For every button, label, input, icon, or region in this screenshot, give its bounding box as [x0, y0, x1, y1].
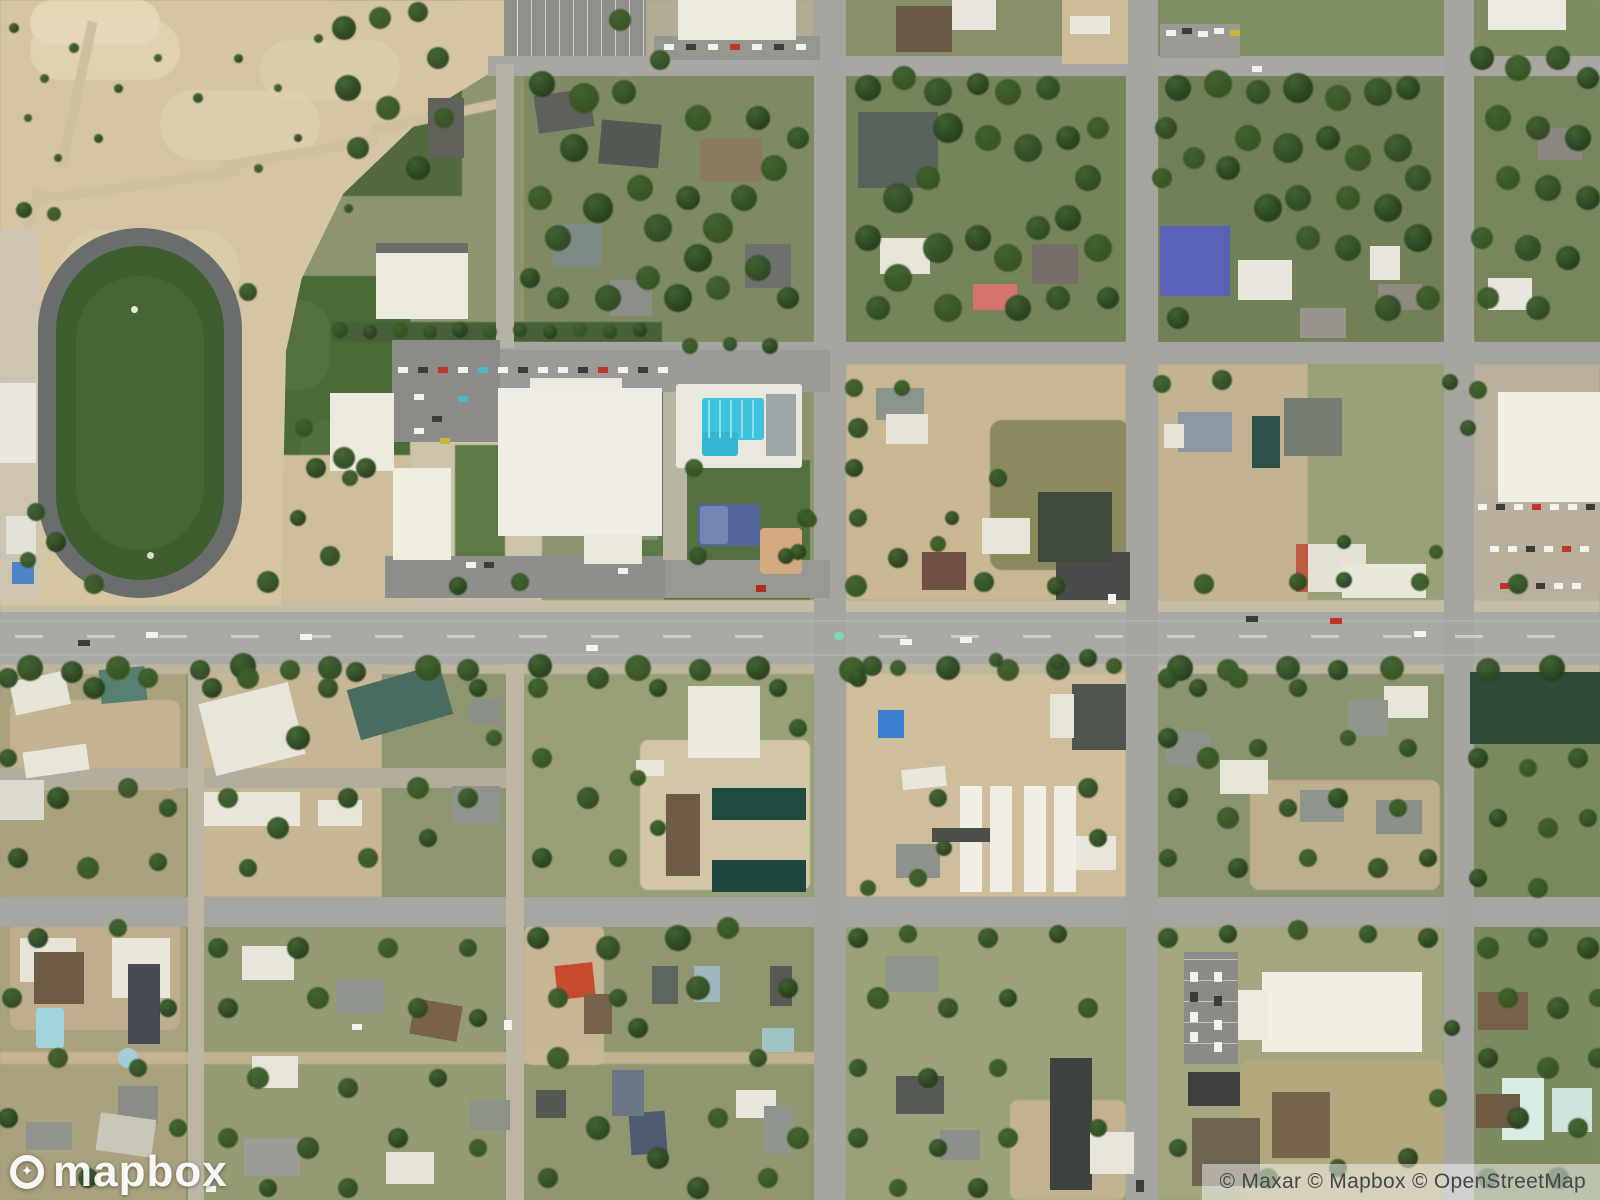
- tree: [1217, 807, 1239, 829]
- tree: [1469, 869, 1487, 887]
- building: [1370, 246, 1400, 280]
- tree: [114, 84, 123, 93]
- tree: [27, 503, 45, 521]
- tree: [1505, 55, 1531, 81]
- car: [1532, 504, 1541, 510]
- tree: [974, 572, 994, 592]
- tree: [995, 79, 1021, 105]
- tree: [237, 667, 259, 689]
- tree: [239, 283, 257, 301]
- tree: [609, 989, 627, 1007]
- tree: [665, 925, 691, 951]
- tree: [612, 80, 636, 104]
- tree: [934, 294, 962, 322]
- desert-area: [260, 40, 400, 100]
- pool-water: [700, 506, 728, 544]
- tree: [1442, 374, 1458, 390]
- tree: [1026, 216, 1050, 240]
- tree: [218, 998, 238, 1018]
- tree: [883, 183, 913, 213]
- tree: [603, 325, 617, 339]
- tree: [1336, 572, 1352, 588]
- tree: [1079, 649, 1097, 667]
- tree: [918, 1068, 938, 1088]
- tree: [1036, 76, 1060, 100]
- tree: [333, 447, 355, 469]
- tree: [344, 204, 353, 213]
- tree: [1228, 668, 1248, 688]
- car: [658, 367, 668, 373]
- tree: [989, 653, 1003, 667]
- tree: [890, 660, 906, 676]
- tree: [332, 322, 348, 338]
- road: [496, 64, 514, 348]
- map-canvas[interactable]: ✦ mapbox © Maxar © Mapbox © OpenStreetMa…: [0, 0, 1600, 1200]
- tree: [703, 213, 733, 243]
- car: [1230, 30, 1240, 36]
- tree: [9, 23, 19, 33]
- car: [664, 44, 674, 50]
- tree: [1289, 679, 1307, 697]
- car: [1198, 31, 1208, 37]
- tree: [1477, 287, 1499, 309]
- tree: [1526, 116, 1550, 140]
- tree: [595, 285, 621, 311]
- tree: [415, 655, 441, 681]
- tree: [1375, 295, 1401, 321]
- tree: [1246, 80, 1270, 104]
- tree: [378, 938, 398, 958]
- tree: [1364, 78, 1392, 106]
- tree: [994, 244, 1022, 272]
- tree: [106, 656, 130, 680]
- tree: [1212, 370, 1232, 390]
- tree: [647, 1147, 669, 1169]
- building: [1284, 398, 1342, 456]
- road-marking: [1167, 635, 1195, 638]
- road-marking: [1023, 635, 1051, 638]
- tree: [520, 268, 540, 288]
- building: [688, 686, 760, 758]
- building: [131, 306, 138, 313]
- tree: [342, 470, 358, 486]
- tree: [936, 840, 952, 856]
- car: [440, 438, 450, 444]
- pool-water: [36, 1008, 64, 1048]
- tree: [406, 156, 430, 180]
- tree: [297, 1137, 319, 1159]
- tree: [938, 998, 958, 1018]
- building: [678, 0, 796, 40]
- tree: [762, 338, 778, 354]
- car: [466, 562, 476, 568]
- tree: [118, 778, 138, 798]
- car: [1214, 996, 1222, 1006]
- tree: [633, 323, 647, 337]
- tree: [457, 659, 479, 681]
- tree: [1444, 1020, 1460, 1036]
- building: [1160, 226, 1230, 296]
- tree: [1345, 145, 1371, 171]
- building: [26, 1122, 72, 1150]
- car: [1136, 1180, 1144, 1192]
- tree: [1197, 747, 1219, 769]
- tree: [685, 105, 711, 131]
- tree: [363, 325, 377, 339]
- tree: [855, 225, 881, 251]
- tree: [1106, 658, 1122, 674]
- tree: [596, 936, 620, 960]
- building: [584, 994, 612, 1034]
- tree: [849, 1059, 867, 1077]
- tree: [208, 938, 228, 958]
- tree: [190, 660, 210, 680]
- tree: [28, 928, 48, 948]
- tree: [1576, 186, 1600, 210]
- tree: [280, 660, 300, 680]
- building: [652, 966, 678, 1004]
- tree: [47, 207, 61, 221]
- building: [1262, 972, 1422, 1052]
- car: [414, 394, 424, 400]
- car: [1572, 583, 1581, 589]
- tree: [1535, 175, 1561, 201]
- car: [586, 645, 598, 651]
- car: [398, 367, 408, 373]
- tree: [1289, 573, 1307, 591]
- tree: [924, 78, 952, 106]
- tree: [650, 50, 670, 70]
- tree: [1336, 186, 1360, 210]
- tree: [1084, 234, 1112, 262]
- tree: [46, 532, 66, 552]
- tree: [239, 859, 257, 877]
- road-marking: [1383, 635, 1411, 638]
- car: [518, 367, 528, 373]
- tree: [746, 656, 770, 680]
- building: [712, 860, 806, 892]
- tree: [560, 134, 588, 162]
- tree: [314, 34, 323, 43]
- car: [1214, 28, 1224, 34]
- building: [470, 700, 500, 724]
- tree: [1249, 739, 1267, 757]
- tree: [1204, 70, 1232, 98]
- car: [796, 44, 806, 50]
- tree: [998, 1128, 1018, 1148]
- road: [0, 897, 1600, 927]
- car: [1108, 594, 1116, 604]
- building: [1384, 686, 1428, 718]
- tree: [527, 927, 549, 949]
- building: [428, 98, 464, 158]
- tree: [1283, 73, 1313, 103]
- building: [386, 1152, 434, 1184]
- car: [834, 632, 844, 640]
- building: [952, 0, 996, 30]
- tree: [254, 164, 263, 173]
- tree: [1418, 928, 1438, 948]
- tree: [968, 1178, 988, 1198]
- building: [1252, 416, 1280, 468]
- tree: [676, 186, 700, 210]
- tree: [1158, 928, 1178, 948]
- tree: [1235, 125, 1261, 151]
- tree: [745, 255, 771, 281]
- tree: [376, 96, 400, 120]
- road-marking: [519, 635, 547, 638]
- pool-water: [730, 400, 732, 438]
- tree: [685, 459, 703, 477]
- tree: [978, 928, 998, 948]
- tree: [532, 748, 552, 768]
- tree: [169, 1119, 187, 1137]
- tree: [1335, 235, 1361, 261]
- building: [1272, 1092, 1330, 1158]
- building: [666, 794, 700, 876]
- tree: [1276, 656, 1300, 680]
- building: [470, 1100, 510, 1130]
- car: [618, 568, 628, 574]
- tree: [1050, 654, 1066, 670]
- tree: [777, 287, 799, 309]
- road-marking: [1527, 635, 1555, 638]
- tree: [945, 511, 959, 525]
- tree: [1498, 988, 1518, 1008]
- tree: [929, 1139, 947, 1157]
- tree: [1228, 858, 1248, 878]
- tree: [1158, 668, 1178, 688]
- car: [478, 367, 488, 373]
- car: [1214, 1042, 1222, 1052]
- tree: [267, 817, 289, 839]
- building: [990, 786, 1012, 892]
- tree: [538, 1168, 558, 1188]
- tree: [845, 575, 867, 597]
- tree: [758, 1168, 778, 1188]
- tree: [159, 799, 177, 817]
- tree: [789, 719, 807, 737]
- tree: [1325, 85, 1351, 111]
- tree: [1055, 205, 1081, 231]
- tree: [452, 322, 468, 338]
- tree: [1014, 134, 1042, 162]
- tree: [1528, 928, 1548, 948]
- tree: [369, 7, 391, 29]
- tree: [909, 869, 927, 887]
- tree: [1538, 818, 1558, 838]
- building: [1470, 672, 1600, 744]
- tree: [649, 679, 667, 697]
- tree: [1097, 287, 1119, 309]
- tree: [469, 679, 487, 697]
- tree: [392, 322, 408, 338]
- tree: [583, 193, 613, 223]
- tree: [287, 937, 309, 959]
- tree: [1047, 577, 1065, 595]
- tree: [318, 678, 338, 698]
- tree: [569, 83, 599, 113]
- tree: [845, 459, 863, 477]
- tree: [408, 998, 428, 1018]
- car: [1550, 504, 1559, 510]
- tree: [1589, 989, 1600, 1007]
- tree: [356, 458, 376, 478]
- tree: [547, 1047, 569, 1069]
- tree: [1056, 126, 1080, 150]
- tree: [1485, 105, 1511, 131]
- road-marking: [1239, 635, 1267, 638]
- tree: [290, 510, 306, 526]
- tree: [17, 655, 43, 681]
- tree: [388, 1128, 408, 1148]
- car: [1190, 1012, 1198, 1022]
- car: [774, 44, 784, 50]
- parking-lot: [1184, 952, 1238, 1064]
- tree: [1460, 420, 1476, 436]
- tree: [54, 154, 62, 162]
- tree: [1429, 1089, 1447, 1107]
- tree: [528, 678, 548, 698]
- tree: [916, 166, 940, 190]
- tree: [849, 509, 867, 527]
- tree: [419, 829, 437, 847]
- mapbox-star-icon: ✦: [21, 1164, 34, 1179]
- tree: [8, 848, 28, 868]
- tree: [40, 74, 49, 83]
- tree: [1155, 117, 1177, 139]
- building: [1220, 760, 1268, 794]
- tree: [528, 654, 552, 678]
- tree: [1089, 1119, 1107, 1137]
- car: [1544, 546, 1553, 552]
- tree: [61, 661, 83, 683]
- tree: [1167, 307, 1189, 329]
- tree: [77, 857, 99, 879]
- tree: [307, 987, 329, 1009]
- tree: [1049, 925, 1067, 943]
- tree: [1288, 920, 1308, 940]
- tree: [1471, 227, 1493, 249]
- building: [1050, 694, 1074, 738]
- tree: [855, 75, 881, 101]
- tree: [706, 276, 730, 300]
- map-attribution[interactable]: © Maxar © Mapbox © OpenStreetMap: [1202, 1164, 1600, 1200]
- car: [1190, 1032, 1198, 1042]
- tree: [1046, 286, 1070, 310]
- parking-lot: [392, 340, 500, 442]
- tree: [469, 1009, 487, 1027]
- road-marking: [1095, 635, 1123, 638]
- tree: [587, 667, 609, 689]
- road-marking: [231, 635, 259, 638]
- building: [1070, 16, 1110, 34]
- pool-water: [708, 400, 710, 438]
- tree: [1396, 76, 1420, 100]
- tree: [933, 113, 963, 143]
- tree: [1519, 759, 1537, 777]
- tree: [1469, 381, 1487, 399]
- tree: [650, 820, 666, 836]
- car: [146, 632, 158, 638]
- tree: [664, 284, 692, 312]
- tree: [20, 552, 36, 568]
- tree: [548, 988, 568, 1008]
- tree: [975, 125, 1001, 151]
- tree: [682, 338, 698, 354]
- tree: [1546, 46, 1570, 70]
- tree: [787, 1127, 809, 1149]
- tree: [1526, 296, 1550, 320]
- tree: [708, 1108, 728, 1128]
- building: [244, 1138, 300, 1176]
- tree: [999, 989, 1017, 1007]
- tree: [848, 418, 868, 438]
- tree: [1416, 286, 1440, 310]
- car: [900, 639, 912, 645]
- tree: [746, 106, 770, 130]
- car: [1190, 992, 1198, 1002]
- tree: [193, 93, 203, 103]
- tree: [286, 726, 310, 750]
- mapbox-logo[interactable]: ✦ mapbox: [10, 1150, 228, 1194]
- tree: [1468, 748, 1488, 768]
- tree: [1328, 788, 1348, 808]
- building: [712, 788, 806, 820]
- parking-lot: [665, 560, 830, 598]
- car: [1252, 66, 1262, 72]
- building: [1164, 424, 1184, 448]
- tree: [1568, 748, 1588, 768]
- building: [34, 952, 84, 1004]
- tree: [1285, 185, 1311, 211]
- tree: [845, 379, 863, 397]
- building: [584, 534, 642, 564]
- tree: [689, 659, 711, 681]
- building: [764, 1106, 792, 1154]
- building: [982, 518, 1030, 554]
- car: [418, 367, 428, 373]
- car: [78, 640, 90, 646]
- tree: [1368, 858, 1388, 878]
- tree: [687, 1177, 709, 1199]
- tree: [338, 788, 358, 808]
- tree: [274, 84, 282, 92]
- tree: [149, 853, 167, 871]
- tree: [138, 668, 158, 688]
- building: [1050, 1058, 1092, 1190]
- road: [188, 664, 204, 1200]
- tree: [930, 536, 946, 552]
- tree: [1273, 133, 1303, 163]
- tree: [1477, 937, 1499, 959]
- tree: [684, 244, 712, 272]
- tree: [1539, 655, 1565, 681]
- tree: [1159, 849, 1177, 867]
- car: [756, 585, 766, 592]
- car: [484, 562, 494, 568]
- tree: [1399, 739, 1417, 757]
- tree: [1577, 67, 1599, 89]
- tree: [1254, 194, 1282, 222]
- tree: [429, 1069, 447, 1087]
- building: [598, 119, 662, 168]
- tree: [630, 770, 646, 786]
- tree: [749, 1049, 767, 1067]
- building: [1178, 412, 1232, 452]
- tree: [761, 155, 787, 181]
- tree: [408, 2, 428, 22]
